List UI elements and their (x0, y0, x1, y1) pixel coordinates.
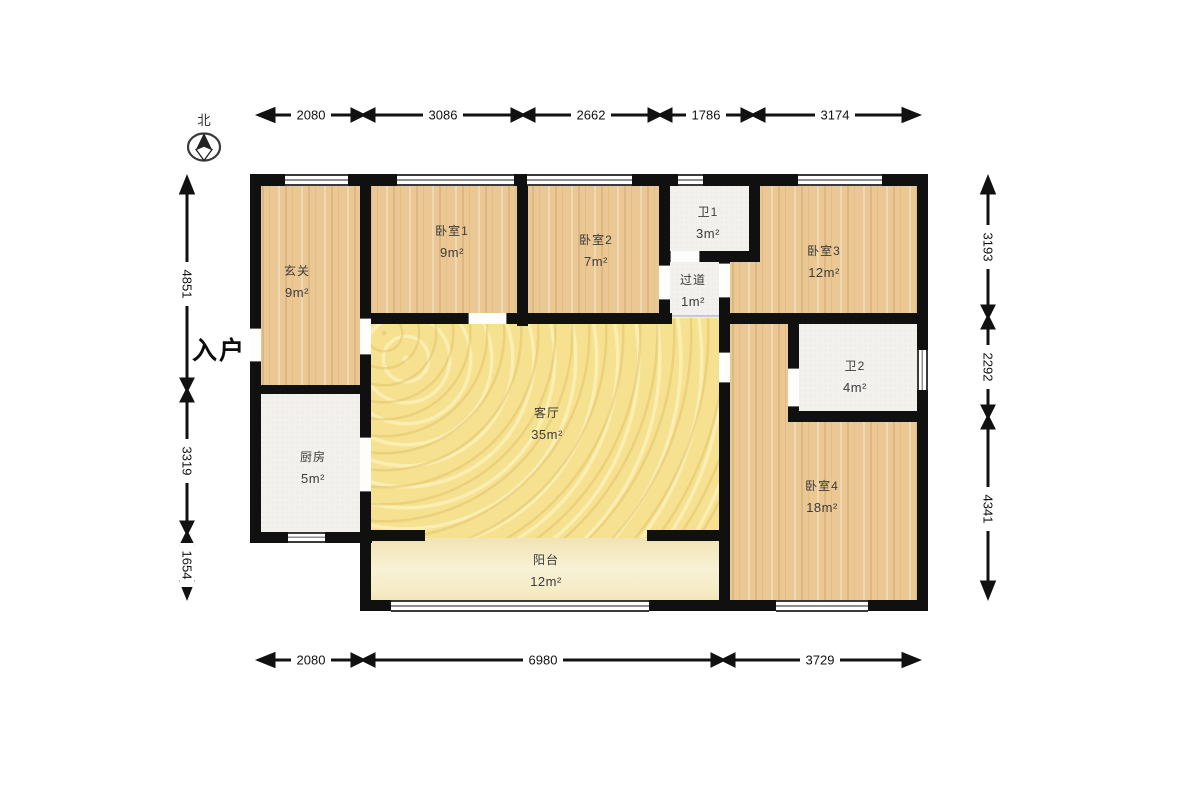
room-label-bedroom1: 卧室1 9m² (435, 222, 469, 260)
door-bedroom3 (719, 263, 730, 298)
tick (983, 406, 994, 417)
window-bath2 (917, 350, 928, 390)
room-area: 1m² (680, 294, 706, 309)
door-bath2 (788, 368, 799, 407)
wall-outer-right (917, 174, 928, 611)
svg-text:4851: 4851 (180, 270, 195, 299)
room-name: 客厅 (531, 404, 563, 421)
room-label-bedroom3: 卧室3 12m² (807, 242, 841, 280)
room-label-bath2: 卫2 4m² (843, 357, 867, 395)
room-name: 卧室2 (579, 231, 613, 248)
tick (523, 110, 534, 121)
compass-needle-north-icon (196, 133, 212, 150)
room-area: 3m² (696, 226, 720, 241)
arrow-left (259, 654, 274, 666)
wall-balcony-top-right (647, 530, 730, 541)
window-kitchen (288, 532, 325, 543)
tick (182, 533, 193, 544)
room-name: 厨房 (300, 448, 326, 465)
dim-label-right-0: 3193 (981, 225, 996, 269)
room-area: 4m² (843, 380, 867, 395)
room-area: 9m² (284, 285, 310, 300)
room-label-bath1: 卫1 3m² (696, 203, 720, 241)
dim-label-right-2: 4341 (981, 487, 996, 531)
room-area: 7m² (579, 254, 613, 269)
door-bath1 (670, 251, 700, 262)
room-area: 18m² (805, 500, 839, 515)
dim-top-2: 2662 (577, 108, 606, 123)
door-bedroom2 (659, 265, 670, 300)
window-balcony (391, 600, 649, 612)
wall-bedroom1-bedroom2 (517, 174, 528, 326)
tick (182, 522, 193, 533)
arrow-down (181, 582, 193, 597)
window-entry-hall (285, 174, 348, 186)
svg-text:1654: 1654 (180, 551, 195, 580)
tick (742, 110, 753, 121)
corridor-living-threshold (672, 315, 719, 317)
arrow-up (181, 178, 193, 193)
wall-living-bedroom4 (719, 251, 730, 611)
dim-top-1: 3086 (429, 108, 458, 123)
svg-text:3319: 3319 (180, 447, 195, 476)
room-label-living: 客厅 35m² (531, 404, 563, 442)
dim-labels-bottom: 2080 6980 3729 (291, 653, 840, 668)
floor-plan-canvas: 玄关 9m² 卧室1 9m² 卧室2 7m² 卫1 3m² 过道 1m² 卧室3… (0, 0, 1177, 785)
window-bath1 (678, 174, 703, 186)
compass: 北 (188, 113, 220, 161)
room-area: 12m² (807, 265, 841, 280)
wall-living-top-left (360, 313, 468, 324)
tick (660, 110, 671, 121)
room-entry-hall-floor (255, 180, 370, 390)
svg-text:2292: 2292 (981, 353, 996, 382)
room-label-kitchen: 厨房 5m² (300, 448, 326, 486)
room-label-balcony: 阳台 12m² (530, 551, 562, 589)
svg-text:3193: 3193 (981, 233, 996, 262)
tick (723, 655, 734, 666)
tick (983, 317, 994, 328)
dim-label-left-1: 3319 (180, 439, 195, 483)
room-area: 12m² (530, 574, 562, 589)
tick (712, 655, 723, 666)
room-name: 卧室1 (435, 222, 469, 239)
tick (363, 655, 374, 666)
room-label-entry-hall: 玄关 9m² (284, 262, 310, 300)
compass-needle-south-icon (196, 146, 212, 161)
compass-north-label: 北 (197, 113, 211, 128)
wall-living-top-right (507, 313, 672, 324)
arrow-up (982, 178, 994, 193)
room-name: 玄关 (284, 262, 310, 279)
arrow-right (903, 109, 918, 121)
tick (182, 390, 193, 401)
room-name: 卧室3 (807, 242, 841, 259)
room-name: 阳台 (530, 551, 562, 568)
room-name: 卧室4 (805, 477, 839, 494)
window-bedroom3 (798, 174, 882, 186)
room-area: 35m² (531, 427, 563, 442)
tick (983, 306, 994, 317)
tick (182, 379, 193, 390)
door-bedroom1 (468, 313, 507, 324)
arrow-left (259, 109, 274, 121)
room-name: 卫1 (696, 203, 720, 220)
room-label-bedroom4: 卧室4 18m² (805, 477, 839, 515)
door-main-entrance (250, 328, 261, 362)
room-area: 5m² (300, 471, 326, 486)
arrow-right (903, 654, 918, 666)
dim-label-left-0: 4851 (180, 262, 195, 306)
room-label-corridor: 过道 1m² (680, 271, 706, 309)
dim-bottom-0: 2080 (297, 653, 326, 668)
dim-bottom-1: 6980 (529, 653, 558, 668)
window-bedroom1 (397, 174, 514, 186)
room-label-bedroom2: 卧室2 7m² (579, 231, 613, 269)
wall-bedroom3-bottom (719, 313, 928, 324)
dim-top-0: 2080 (297, 108, 326, 123)
door-bedroom4 (719, 352, 730, 383)
wall-entry-kitchen (250, 385, 371, 394)
dim-top-3: 1786 (692, 108, 721, 123)
window-bedroom4 (776, 600, 868, 612)
window-bedroom2 (527, 174, 632, 186)
dim-label-right-1: 2292 (981, 345, 996, 389)
tick (512, 110, 523, 121)
tick (352, 655, 363, 666)
entrance-label: 入户 (192, 331, 246, 367)
room-name: 过道 (680, 271, 706, 288)
tick (983, 417, 994, 428)
wall-bath2-bottom (788, 411, 928, 422)
dim-label-left-2: 1654 (180, 543, 195, 587)
room-area: 9m² (435, 245, 469, 260)
tick (753, 110, 764, 121)
svg-text:4341: 4341 (981, 495, 996, 524)
compass-circle (188, 134, 220, 161)
dim-bottom-2: 3729 (806, 653, 835, 668)
tick (363, 110, 374, 121)
tick (649, 110, 660, 121)
wall-bath1-bedroom3 (749, 174, 760, 262)
door-kitchen (360, 437, 371, 492)
wall-balcony-top-left (360, 530, 425, 541)
tick (352, 110, 363, 121)
door-entry-hall-living (360, 318, 371, 355)
arrow-down (982, 582, 994, 597)
room-name: 卫2 (843, 357, 867, 374)
dim-top-4: 3174 (821, 108, 850, 123)
dim-labels-top: 2080 3086 2662 1786 3174 (291, 108, 855, 123)
